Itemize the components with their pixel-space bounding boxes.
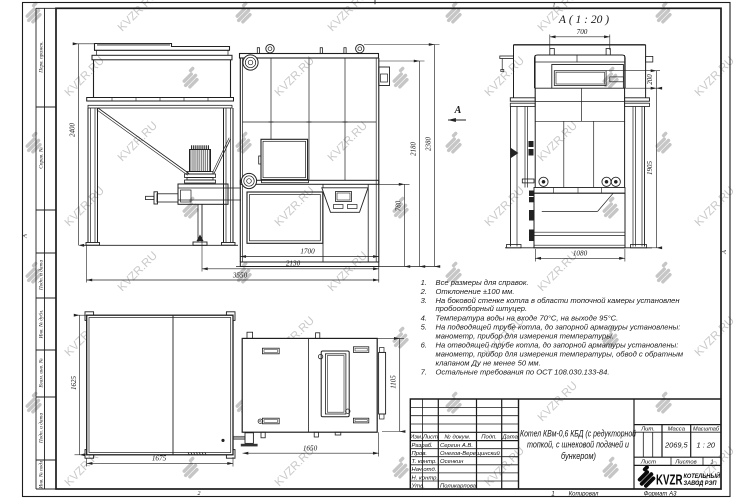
svg-text:KVZR: KVZR bbox=[656, 473, 683, 489]
svg-text:1 : 20: 1 : 20 bbox=[697, 441, 716, 450]
svg-text:А: А bbox=[454, 105, 462, 116]
svg-text:На подводящей трубе котла, до: На подводящей трубе котла, до запорной а… bbox=[436, 322, 681, 331]
svg-text:А ( 1 : 20 ): А ( 1 : 20 ) bbox=[558, 14, 609, 26]
svg-text:2400: 2400 bbox=[69, 123, 77, 138]
svg-text:7.: 7. bbox=[421, 367, 427, 376]
svg-text:3.: 3. bbox=[421, 296, 427, 305]
svg-text:1.: 1. bbox=[421, 278, 427, 287]
svg-text:4.: 4. bbox=[421, 313, 427, 322]
svg-text:Нач.отд.: Нач.отд. bbox=[412, 467, 437, 473]
svg-text:1080: 1080 bbox=[573, 249, 588, 257]
svg-text:Утв.: Утв. bbox=[411, 483, 425, 489]
svg-text:Осенкин: Осенкин bbox=[440, 459, 464, 465]
svg-text:Масса: Масса bbox=[668, 427, 686, 433]
svg-text:2130: 2130 bbox=[286, 260, 301, 268]
svg-text:Котел КВм-0,6 КБД (с редукторн: Котел КВм-0,6 КБД (с редукторной bbox=[520, 428, 636, 438]
svg-text:Инв. № дубл.: Инв. № дубл. bbox=[38, 310, 45, 340]
svg-text:Изм.: Изм. bbox=[410, 435, 423, 441]
svg-text:Копировал: Копировал bbox=[569, 491, 599, 497]
svg-text:Температура воды на входе 70°С: Температура воды на входе 70°С, на выход… bbox=[436, 313, 619, 322]
svg-text:Разраб.: Разраб. bbox=[412, 443, 433, 449]
svg-text:2: 2 bbox=[198, 491, 201, 497]
svg-text:Подп. и дата: Подп. и дата bbox=[38, 413, 45, 445]
svg-text:Остальные требования по ОСТ 10: Остальные требования по ОСТ 108.030.133-… bbox=[436, 367, 610, 376]
svg-text:1700: 1700 bbox=[300, 248, 315, 256]
svg-text:1625: 1625 bbox=[70, 376, 78, 391]
svg-text:2380: 2380 bbox=[425, 137, 433, 152]
svg-text:№ докум.: № докум. bbox=[444, 434, 470, 441]
svg-text:Сергин А.В.: Сергин А.В. bbox=[440, 443, 473, 449]
svg-text:1: 1 bbox=[551, 491, 554, 497]
svg-text:1: 1 bbox=[710, 460, 713, 466]
svg-text:1675: 1675 bbox=[152, 454, 167, 462]
svg-text:Отклонение ±100 мм.: Отклонение ±100 мм. bbox=[436, 287, 515, 296]
svg-text:Лист: Лист bbox=[422, 435, 438, 441]
svg-text:2069,5: 2069,5 bbox=[664, 441, 688, 450]
svg-text:бункером): бункером) bbox=[561, 451, 596, 461]
svg-text:2180: 2180 bbox=[410, 142, 418, 157]
svg-text:700: 700 bbox=[577, 28, 588, 36]
svg-text:1905: 1905 bbox=[646, 161, 654, 176]
svg-text:А: А bbox=[22, 234, 29, 239]
svg-text:Справ. №: Справ. № bbox=[39, 147, 45, 168]
svg-text:А: А bbox=[721, 250, 728, 255]
svg-text:Н. контр.: Н. контр. bbox=[412, 475, 439, 481]
svg-text:Взам. инв. №: Взам. инв. № bbox=[39, 358, 45, 387]
svg-text:Пров.: Пров. bbox=[412, 451, 428, 457]
svg-text:Листов: Листов bbox=[674, 460, 696, 466]
svg-text:Лит.: Лит. bbox=[640, 427, 655, 433]
svg-text:топкой, с шнековой подачей и: топкой, с шнековой подачей и bbox=[527, 440, 629, 450]
svg-text:1: 1 bbox=[553, 3, 556, 9]
svg-text:манометр, прибор для измерения: манометр, прибор для измерения температу… bbox=[436, 349, 684, 358]
svg-text:Поликарпова: Поликарпова bbox=[440, 483, 477, 489]
svg-text:6.: 6. bbox=[421, 340, 427, 349]
svg-text:1650: 1650 bbox=[303, 444, 318, 452]
svg-text:Инв. № подл.: Инв. № подл. bbox=[38, 459, 45, 489]
svg-text:пробоотборный штуцер.: пробоотборный штуцер. bbox=[436, 304, 528, 313]
svg-text:Лист: Лист bbox=[640, 460, 656, 466]
svg-text:клапаном Ду не менее 50 мм.: клапаном Ду не менее 50 мм. bbox=[436, 358, 541, 367]
svg-text:На отводящей трубе котла, до з: На отводящей трубе котла, до запорной ар… bbox=[436, 340, 679, 349]
svg-text:780: 780 bbox=[395, 200, 403, 211]
svg-text:Подп.: Подп. bbox=[481, 435, 497, 441]
svg-text:ЗАВОД РЭП: ЗАВОД РЭП bbox=[684, 481, 718, 487]
svg-text:Перв. примен.: Перв. примен. bbox=[39, 41, 45, 73]
svg-text:5.: 5. bbox=[421, 322, 427, 331]
svg-text:манометр, прибор для измерения: манометр, прибор для измерения температу… bbox=[436, 331, 614, 340]
svg-text:Формат А3: Формат А3 bbox=[644, 491, 677, 497]
svg-text:Все размеры для справок.: Все размеры для справок. bbox=[436, 278, 529, 287]
svg-text:КОТЕЛЬНЫЙ: КОТЕЛЬНЫЙ bbox=[684, 472, 721, 480]
svg-text:Т. контр.: Т. контр. bbox=[412, 459, 437, 465]
svg-text:Онегов-Верещинский: Онегов-Верещинский bbox=[440, 450, 501, 457]
svg-text:200: 200 bbox=[646, 74, 654, 85]
svg-text:3550: 3550 bbox=[232, 272, 248, 280]
svg-text:Масштаб: Масштаб bbox=[693, 427, 720, 433]
svg-text:Дата: Дата bbox=[501, 435, 518, 441]
svg-text:2.: 2. bbox=[420, 287, 427, 296]
svg-text:1105: 1105 bbox=[390, 375, 398, 389]
svg-text:Подп. и дата: Подп. и дата bbox=[38, 260, 45, 292]
